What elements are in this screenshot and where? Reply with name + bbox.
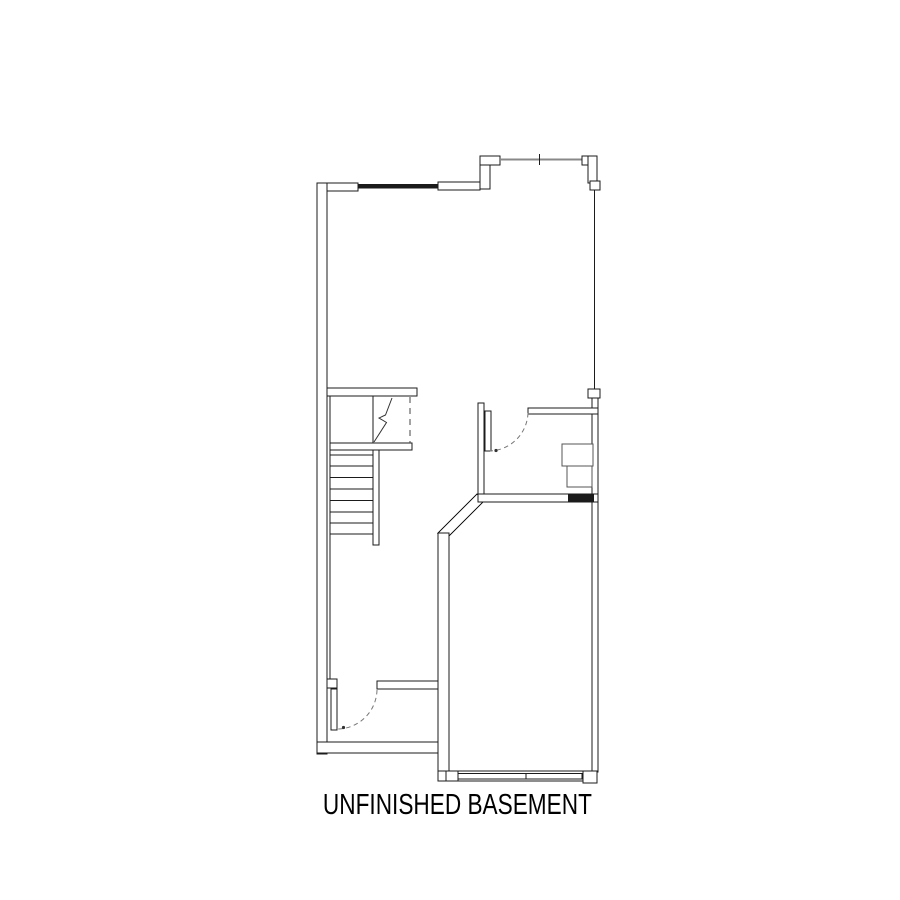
door-stub-wall <box>478 403 484 494</box>
plan-title: UNFINISHED BASEMENT <box>157 790 757 820</box>
masonry-block <box>568 494 594 503</box>
interior-walls <box>330 396 598 781</box>
stair-landing-wall <box>330 443 412 450</box>
left-exterior-wall <box>317 183 327 754</box>
interior-door-arc-arrow <box>494 449 497 452</box>
bottom-window-left-cap <box>446 771 458 781</box>
plan-title-text: UNFINISHED BASEMENT <box>323 790 592 820</box>
floor-plan-drawing <box>0 0 900 900</box>
stair-stringer <box>373 450 379 545</box>
floor-plan-canvas: UNFINISHED BASEMENT <box>0 0 900 900</box>
upper-interior-wall <box>528 408 598 414</box>
bottom-walls <box>317 742 597 783</box>
bottom-window-right-cap <box>583 771 597 783</box>
staircase <box>327 388 417 545</box>
top-left-wall-cap <box>327 183 358 191</box>
left-room-bottom-wall <box>317 742 438 753</box>
central-vertical-wall <box>438 533 449 781</box>
understair-room-wall <box>377 681 438 689</box>
angled-wall <box>438 494 483 536</box>
stair-break-line <box>374 398 392 442</box>
exterior-walls <box>317 154 600 772</box>
understair-door-swing-arc <box>338 690 377 729</box>
furnace-upper-box <box>562 444 593 466</box>
bottom-window <box>458 774 582 780</box>
furnace-lower-box <box>567 466 592 487</box>
stair-header-wall <box>327 388 417 396</box>
understair-door-arc-arrow <box>342 726 345 729</box>
understair-door-leaf <box>331 689 337 730</box>
interior-door-swing-arc <box>490 413 528 451</box>
right-wall-mid-notch <box>588 389 600 398</box>
top-window-right-jamb <box>588 156 597 183</box>
right-wall-upper-notch <box>590 181 600 190</box>
furnace-unit <box>562 444 593 487</box>
stair-treads <box>330 455 373 534</box>
top-wall-step <box>438 182 480 190</box>
top-window-left-jamb-cap <box>480 156 500 165</box>
interior-door-leaf <box>485 411 491 451</box>
understair-door-jamb <box>327 679 337 688</box>
top-wall-window-band <box>358 184 438 189</box>
